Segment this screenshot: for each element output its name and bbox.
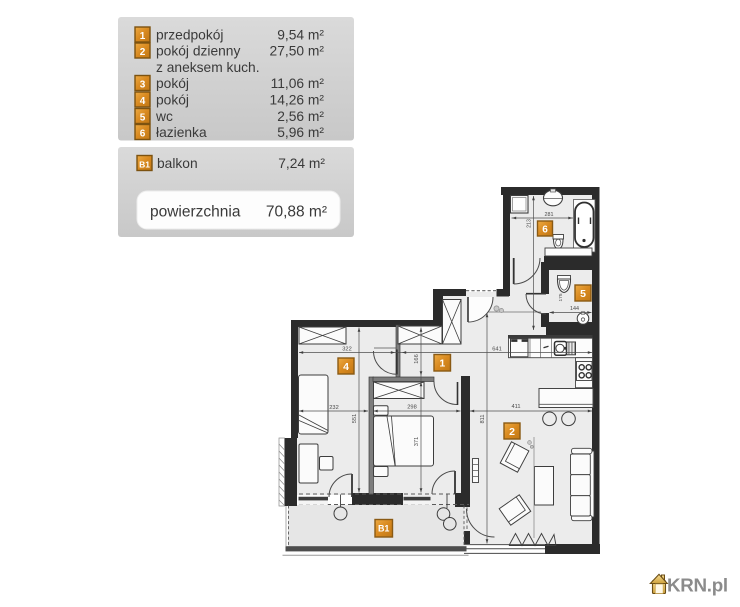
svg-text:2: 2 — [140, 47, 146, 58]
svg-text:551: 551 — [352, 414, 358, 424]
svg-text:5,96 m²: 5,96 m² — [277, 125, 324, 140]
svg-text:łazienka: łazienka — [156, 125, 207, 140]
svg-text:175: 175 — [558, 293, 564, 301]
svg-text:144: 144 — [570, 306, 579, 312]
svg-text:4: 4 — [343, 361, 349, 373]
svg-text:213: 213 — [527, 219, 533, 228]
svg-text:1: 1 — [140, 31, 146, 42]
svg-text:811: 811 — [480, 414, 486, 423]
svg-text:pokój: pokój — [156, 76, 189, 91]
svg-text:6: 6 — [140, 128, 146, 139]
svg-text:KRN.pl: KRN.pl — [667, 575, 728, 596]
svg-text:322: 322 — [342, 347, 352, 353]
svg-text:5: 5 — [580, 288, 586, 300]
svg-text:7,24 m²: 7,24 m² — [278, 156, 325, 171]
svg-text:wc: wc — [155, 109, 173, 124]
svg-text:70,88 m²: 70,88 m² — [266, 204, 327, 221]
svg-text:166: 166 — [414, 354, 420, 364]
svg-text:1: 1 — [439, 358, 445, 370]
svg-text:B1: B1 — [139, 159, 150, 169]
svg-text:371: 371 — [414, 437, 420, 447]
svg-text:14,26 m²: 14,26 m² — [270, 93, 325, 108]
svg-text:641: 641 — [492, 347, 502, 353]
svg-text:6: 6 — [542, 224, 548, 235]
svg-text:B1: B1 — [378, 524, 390, 534]
svg-text:9,54 m²: 9,54 m² — [277, 28, 324, 43]
svg-text:411: 411 — [511, 404, 520, 410]
svg-text:3: 3 — [140, 79, 146, 90]
svg-text:4: 4 — [140, 96, 146, 107]
svg-text:pokój: pokój — [156, 93, 189, 108]
svg-text:balkon: balkon — [157, 156, 198, 171]
svg-text:11,06 m²: 11,06 m² — [271, 76, 325, 91]
svg-text:z aneksem kuch.: z aneksem kuch. — [156, 60, 260, 75]
svg-text:przedpokój: przedpokój — [156, 28, 224, 43]
svg-text:27,50 m²: 27,50 m² — [270, 44, 325, 59]
svg-text:2: 2 — [509, 426, 515, 438]
svg-text:5: 5 — [140, 112, 146, 123]
svg-text:pokój dzienny: pokój dzienny — [156, 44, 240, 59]
svg-text:298: 298 — [407, 405, 417, 411]
svg-text:281: 281 — [545, 212, 554, 218]
svg-text:2,56 m²: 2,56 m² — [277, 109, 324, 124]
svg-text:232: 232 — [329, 405, 339, 411]
svg-text:powierzchnia: powierzchnia — [150, 204, 241, 221]
